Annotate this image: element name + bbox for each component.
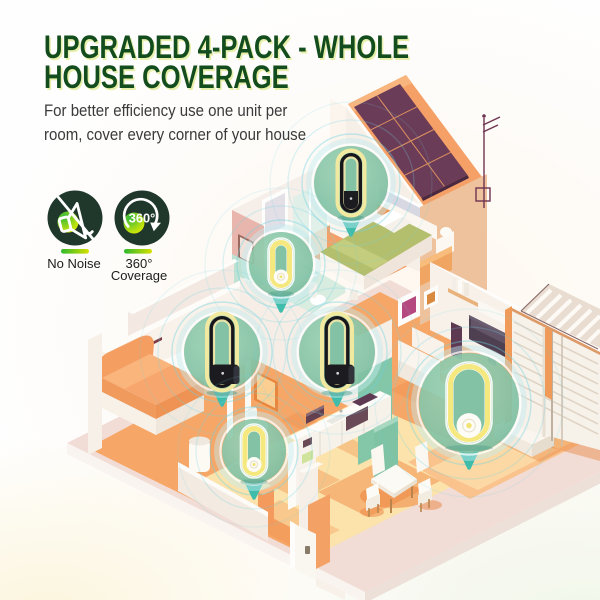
svg-text:360°: 360°	[129, 211, 155, 226]
